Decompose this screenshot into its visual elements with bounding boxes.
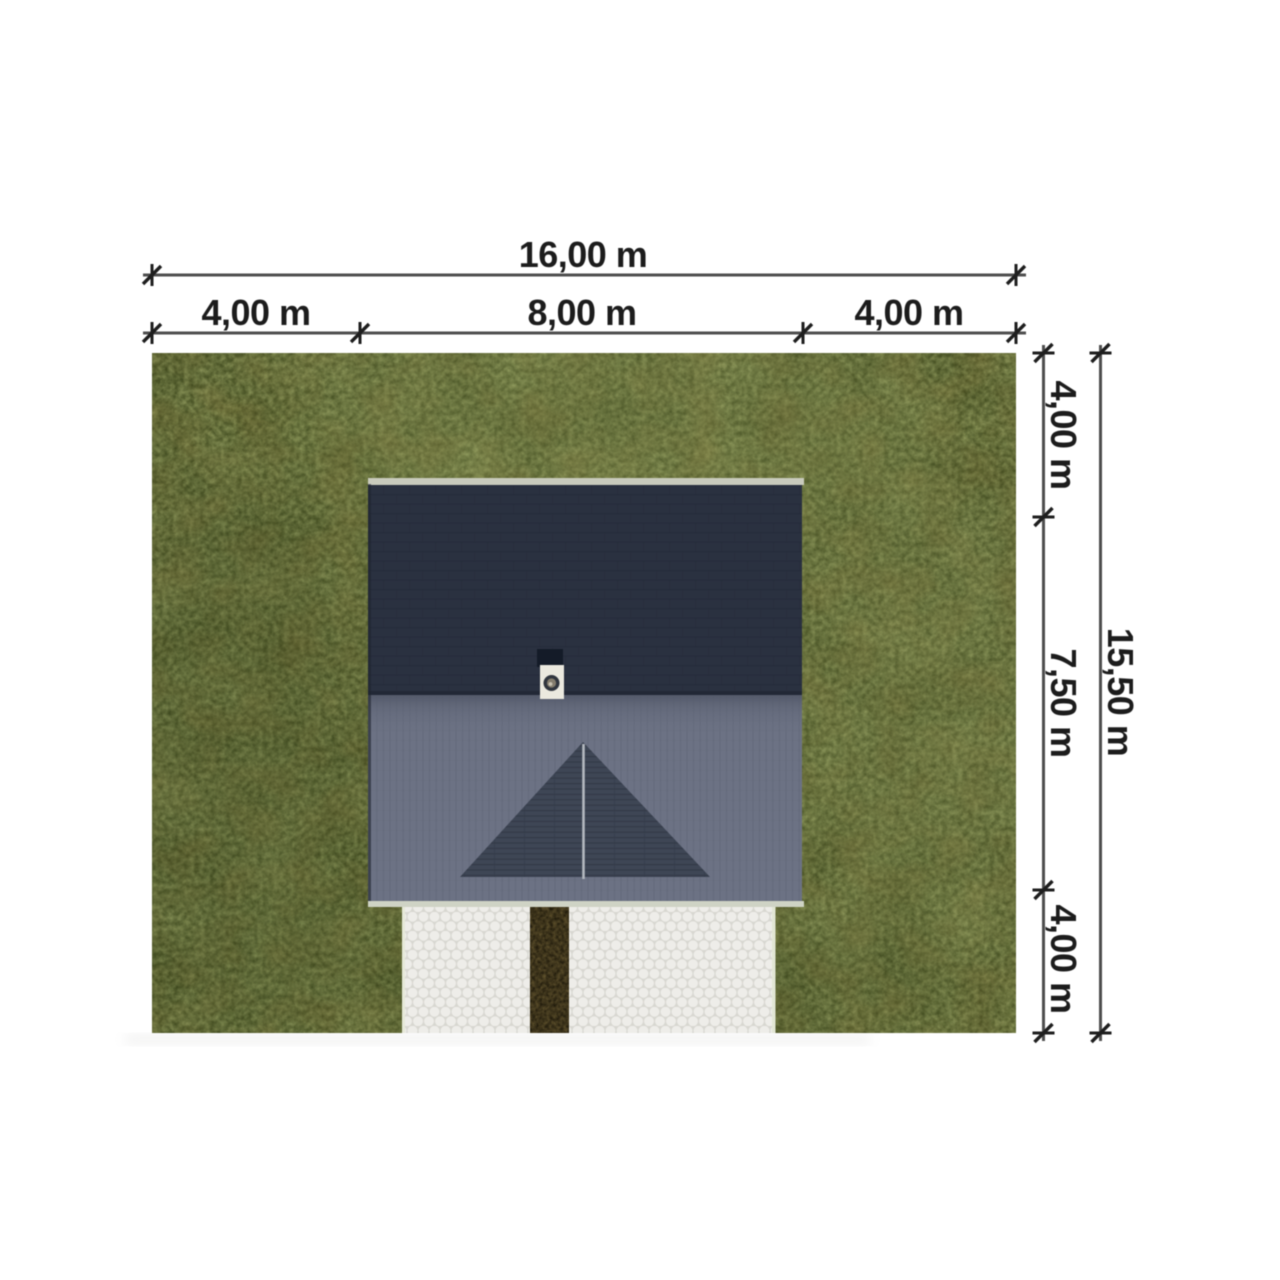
svg-text:8,00 m: 8,00 m xyxy=(527,292,636,333)
svg-text:16,00 m: 16,00 m xyxy=(519,234,648,275)
svg-text:15,50 m: 15,50 m xyxy=(1100,628,1141,757)
svg-text:4,00 m: 4,00 m xyxy=(1043,380,1084,489)
svg-text:4,00 m: 4,00 m xyxy=(1043,904,1084,1013)
svg-text:4,00 m: 4,00 m xyxy=(854,292,963,333)
svg-text:7,50 m: 7,50 m xyxy=(1043,648,1084,757)
svg-text:4,00 m: 4,00 m xyxy=(201,292,310,333)
